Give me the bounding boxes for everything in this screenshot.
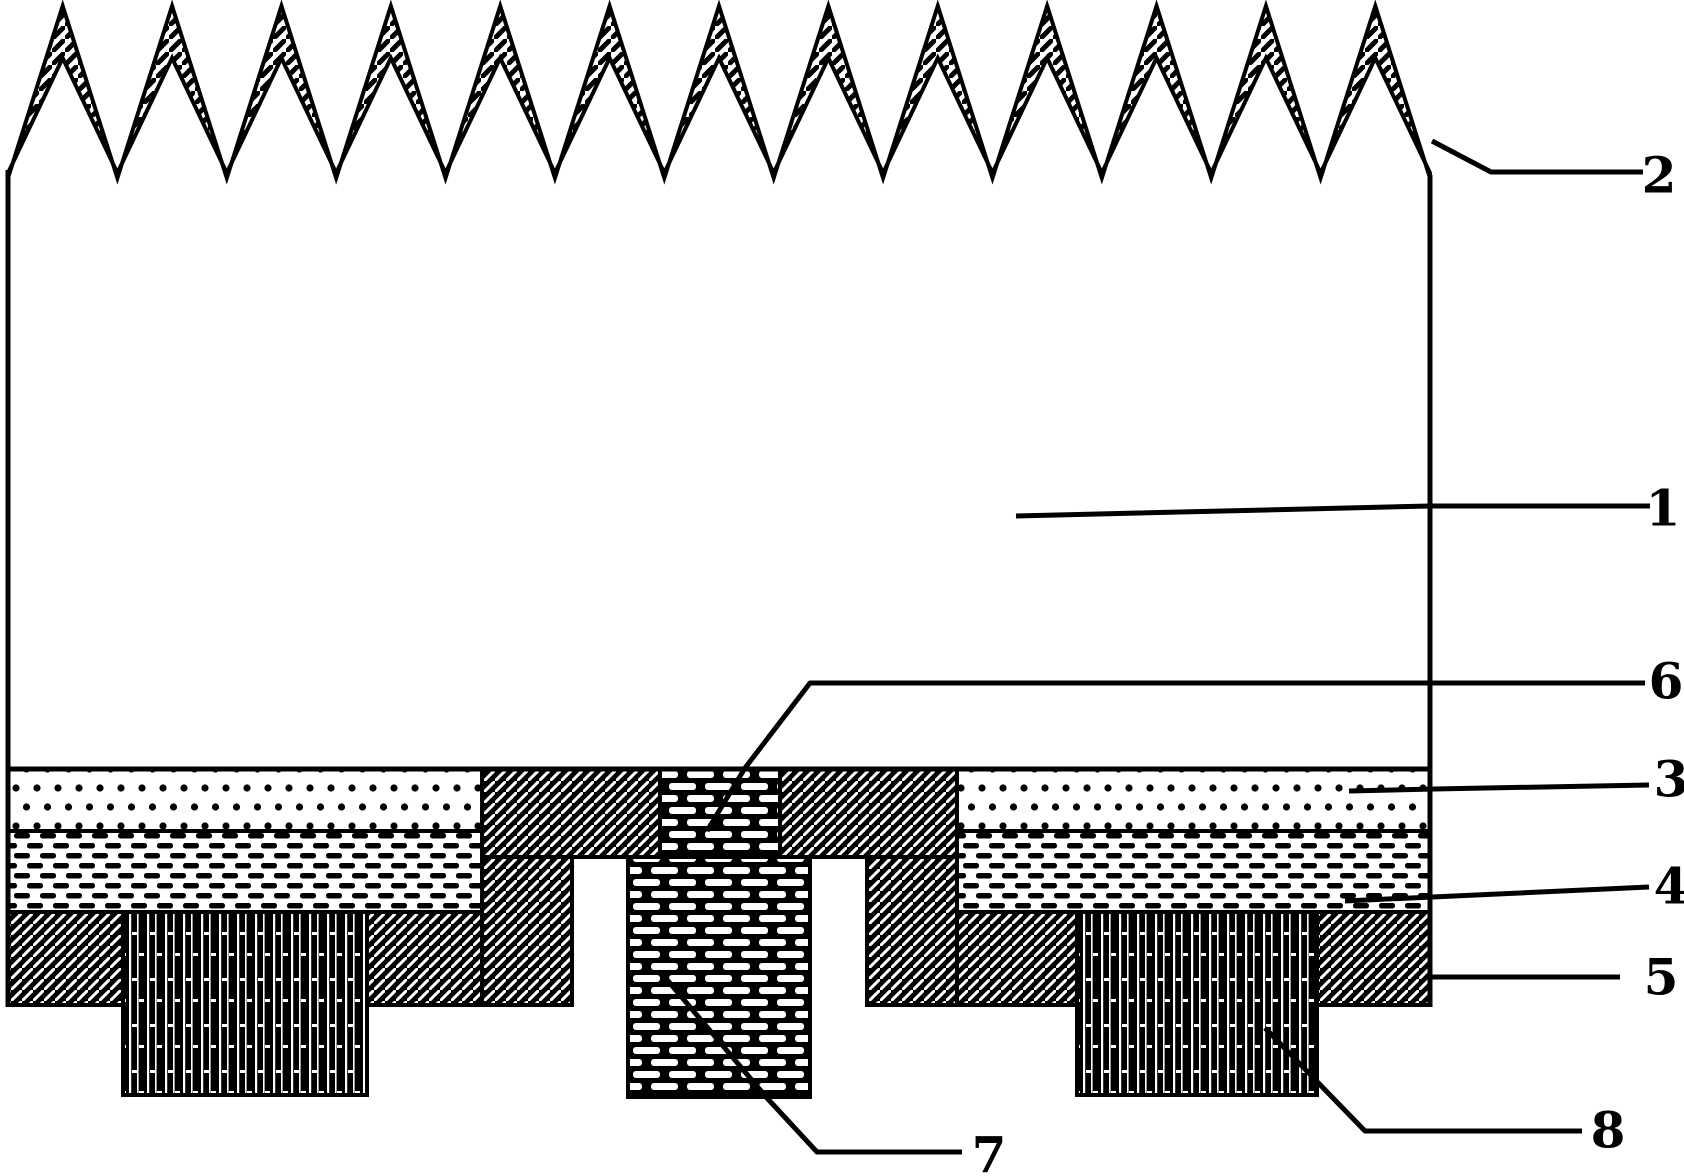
- leader-line-1: [1016, 506, 1650, 516]
- hatch-layer-left-inner: [367, 912, 482, 1005]
- electrode-block-right: [1077, 912, 1317, 1095]
- hatch-contact-right-top: [780, 769, 957, 857]
- textured-surface-layer: [8, 6, 1430, 178]
- hatch-contact-right-leg: [867, 857, 957, 1005]
- callout-label-2: 2: [1642, 146, 1677, 205]
- callout-label-5: 5: [1644, 948, 1679, 1007]
- hatch-contact-left-top: [482, 769, 660, 857]
- hatch-layer-right-outer: [1317, 912, 1430, 1005]
- patent-figure: 12345678: [0, 0, 1684, 1176]
- callout-label-7: 7: [972, 1126, 1007, 1176]
- hatch-layer-right-inner: [957, 912, 1077, 1005]
- figure-canvas: 12345678: [0, 0, 1684, 1176]
- callout-label-6: 6: [1649, 652, 1684, 711]
- callout-label-8: 8: [1591, 1101, 1626, 1160]
- dotted-layer-left: [8, 769, 482, 831]
- leader-line-2: [1432, 141, 1643, 172]
- callout-label-3: 3: [1654, 750, 1684, 809]
- dotted-layer-right: [957, 769, 1430, 831]
- dashed-layer-left: [8, 831, 482, 912]
- electrode-block-left: [123, 912, 367, 1095]
- hatch-contact-left-leg: [482, 857, 572, 1005]
- layer-regions: [8, 769, 1430, 1097]
- hatch-layer-left-outer: [8, 912, 123, 1005]
- callout-label-4: 4: [1654, 857, 1684, 916]
- brick-via-column: [628, 857, 810, 1097]
- callout-label-1: 1: [1646, 479, 1681, 538]
- textured-top-layer: [8, 6, 1430, 178]
